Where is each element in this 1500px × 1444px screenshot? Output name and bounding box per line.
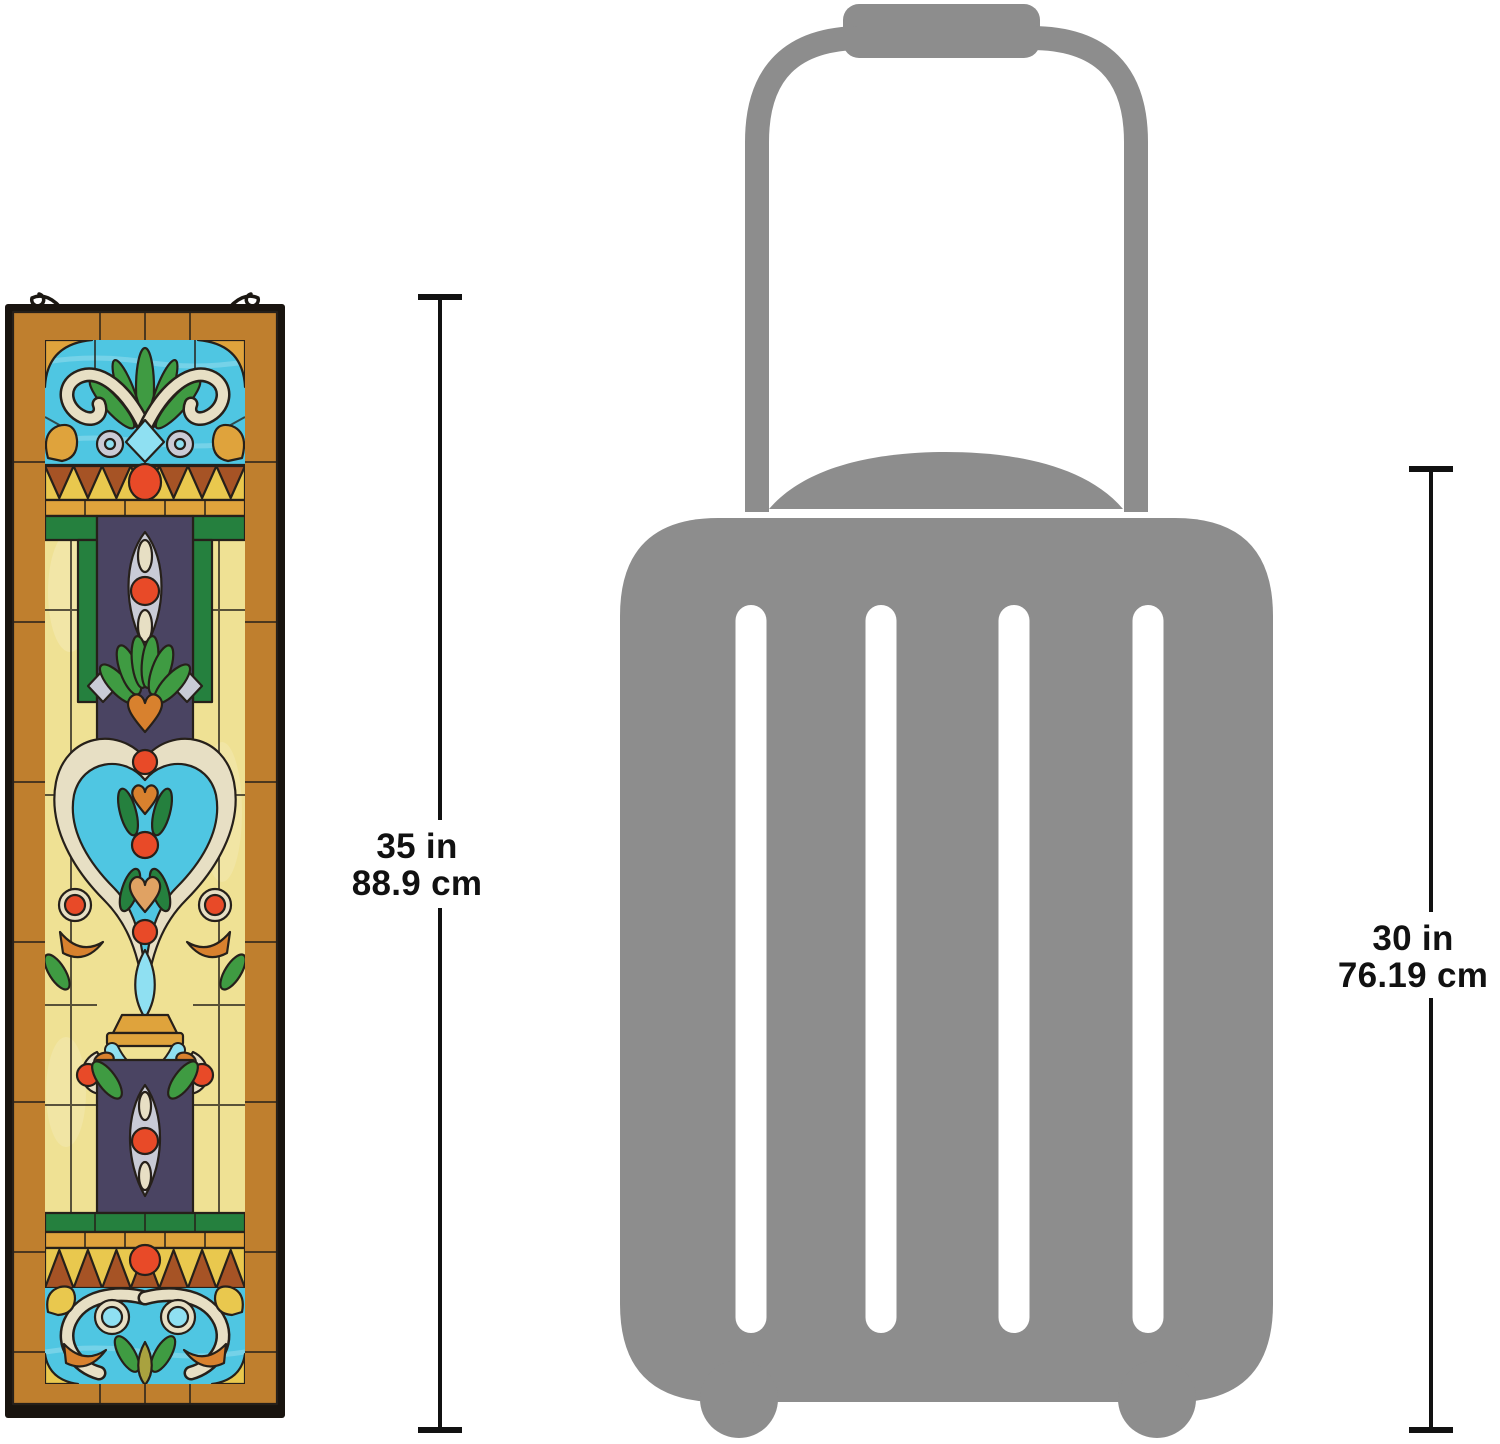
suitcase-top-hump [769,452,1123,509]
stained-glass-panel-image [0,292,290,1418]
suitcase-wheel-right [1118,1360,1196,1438]
panel-height-label: 35 in 88.9 cm [312,828,522,902]
dimension-cap-bottom [1409,1427,1453,1433]
dimension-line-lower [438,908,442,1429]
suitcase-silhouette-icon [600,0,1300,1444]
suitcase-body [620,518,1273,1402]
dimension-cap-bottom [418,1427,462,1433]
size-comparison-diagram: 35 in 88.9 cm 30 in 76.19 cm [0,0,1500,1444]
dimension-line-upper [1429,470,1433,912]
glass-artwork [40,340,251,1385]
suitcase-height-inches: 30 in [1308,920,1500,957]
suitcase-wheel-left [700,1360,778,1438]
dimension-line-lower [1429,998,1433,1429]
panel-height-cm: 88.9 cm [312,865,522,902]
suitcase-height-label: 30 in 76.19 cm [1308,920,1500,994]
dimension-line-upper [438,298,442,820]
panel-height-inches: 35 in [312,828,522,865]
suitcase-height-cm: 76.19 cm [1308,957,1500,994]
suitcase-handle-arch [757,38,1136,512]
